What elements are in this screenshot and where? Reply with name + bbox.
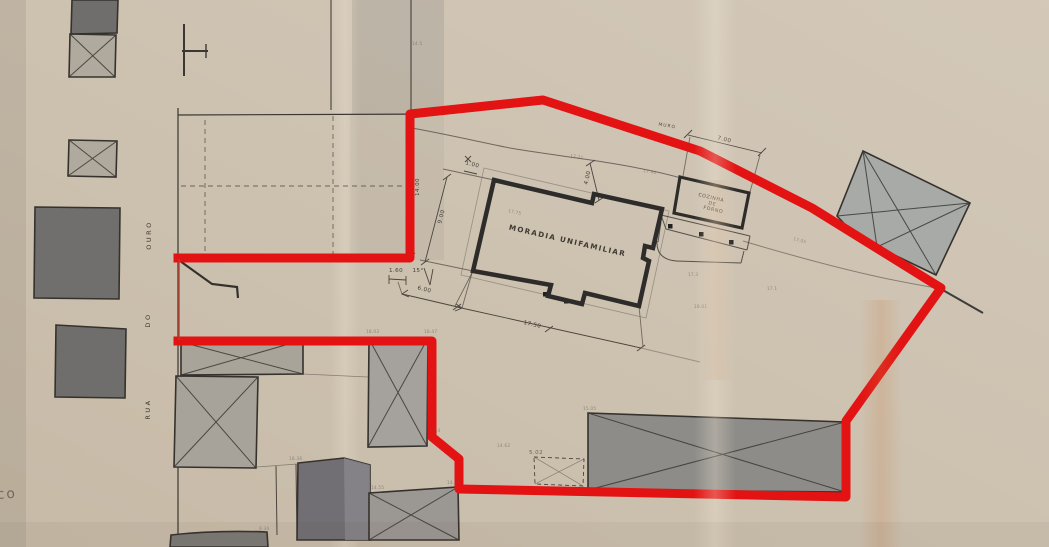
fold-crease-tint [700, 180, 734, 380]
spot-elevation: 14.4 [430, 428, 440, 434]
street-name-word: DO [144, 312, 152, 327]
spot-elevation: 14.5 [412, 41, 422, 47]
site-plan-drawing: MORADIA UNIFAMILIAR COZINHA DE FORNO MUR… [0, 0, 1049, 547]
dim-label: 15° [412, 268, 423, 274]
spot-elevation: 17.1 [767, 286, 777, 292]
street-name-word: RUA [144, 398, 152, 419]
edge-text-fragment: co [0, 486, 17, 503]
bottom-shade [0, 522, 1049, 547]
gray-wash-mid [350, 114, 444, 260]
paper-left-shadow [0, 0, 26, 547]
street-name-word: OURO [145, 220, 153, 250]
spot-elevation: 18.47 [424, 329, 437, 335]
spot-elevation: 14.05 [447, 480, 460, 486]
dim-label: 1.60 [389, 268, 403, 274]
dim-label: 14.00 [415, 178, 421, 196]
building [55, 325, 126, 398]
spot-elevation: 14.62 [497, 443, 510, 449]
spot-elevation: 15.05 [583, 406, 596, 412]
pier-dot [668, 224, 673, 229]
spot-elevation: 18.36 [289, 456, 302, 462]
building [34, 207, 120, 299]
site-plan-canvas: MORADIA UNIFAMILIAR COZINHA DE FORNO MUR… [0, 0, 1049, 547]
building [71, 0, 118, 34]
gray-wash-top [352, 0, 444, 114]
spot-elevation: 14.55 [371, 485, 384, 491]
fold-crease-right [860, 300, 902, 547]
dim-label: 5.02 [529, 450, 543, 456]
spot-elevation: 18.03 [366, 329, 379, 335]
